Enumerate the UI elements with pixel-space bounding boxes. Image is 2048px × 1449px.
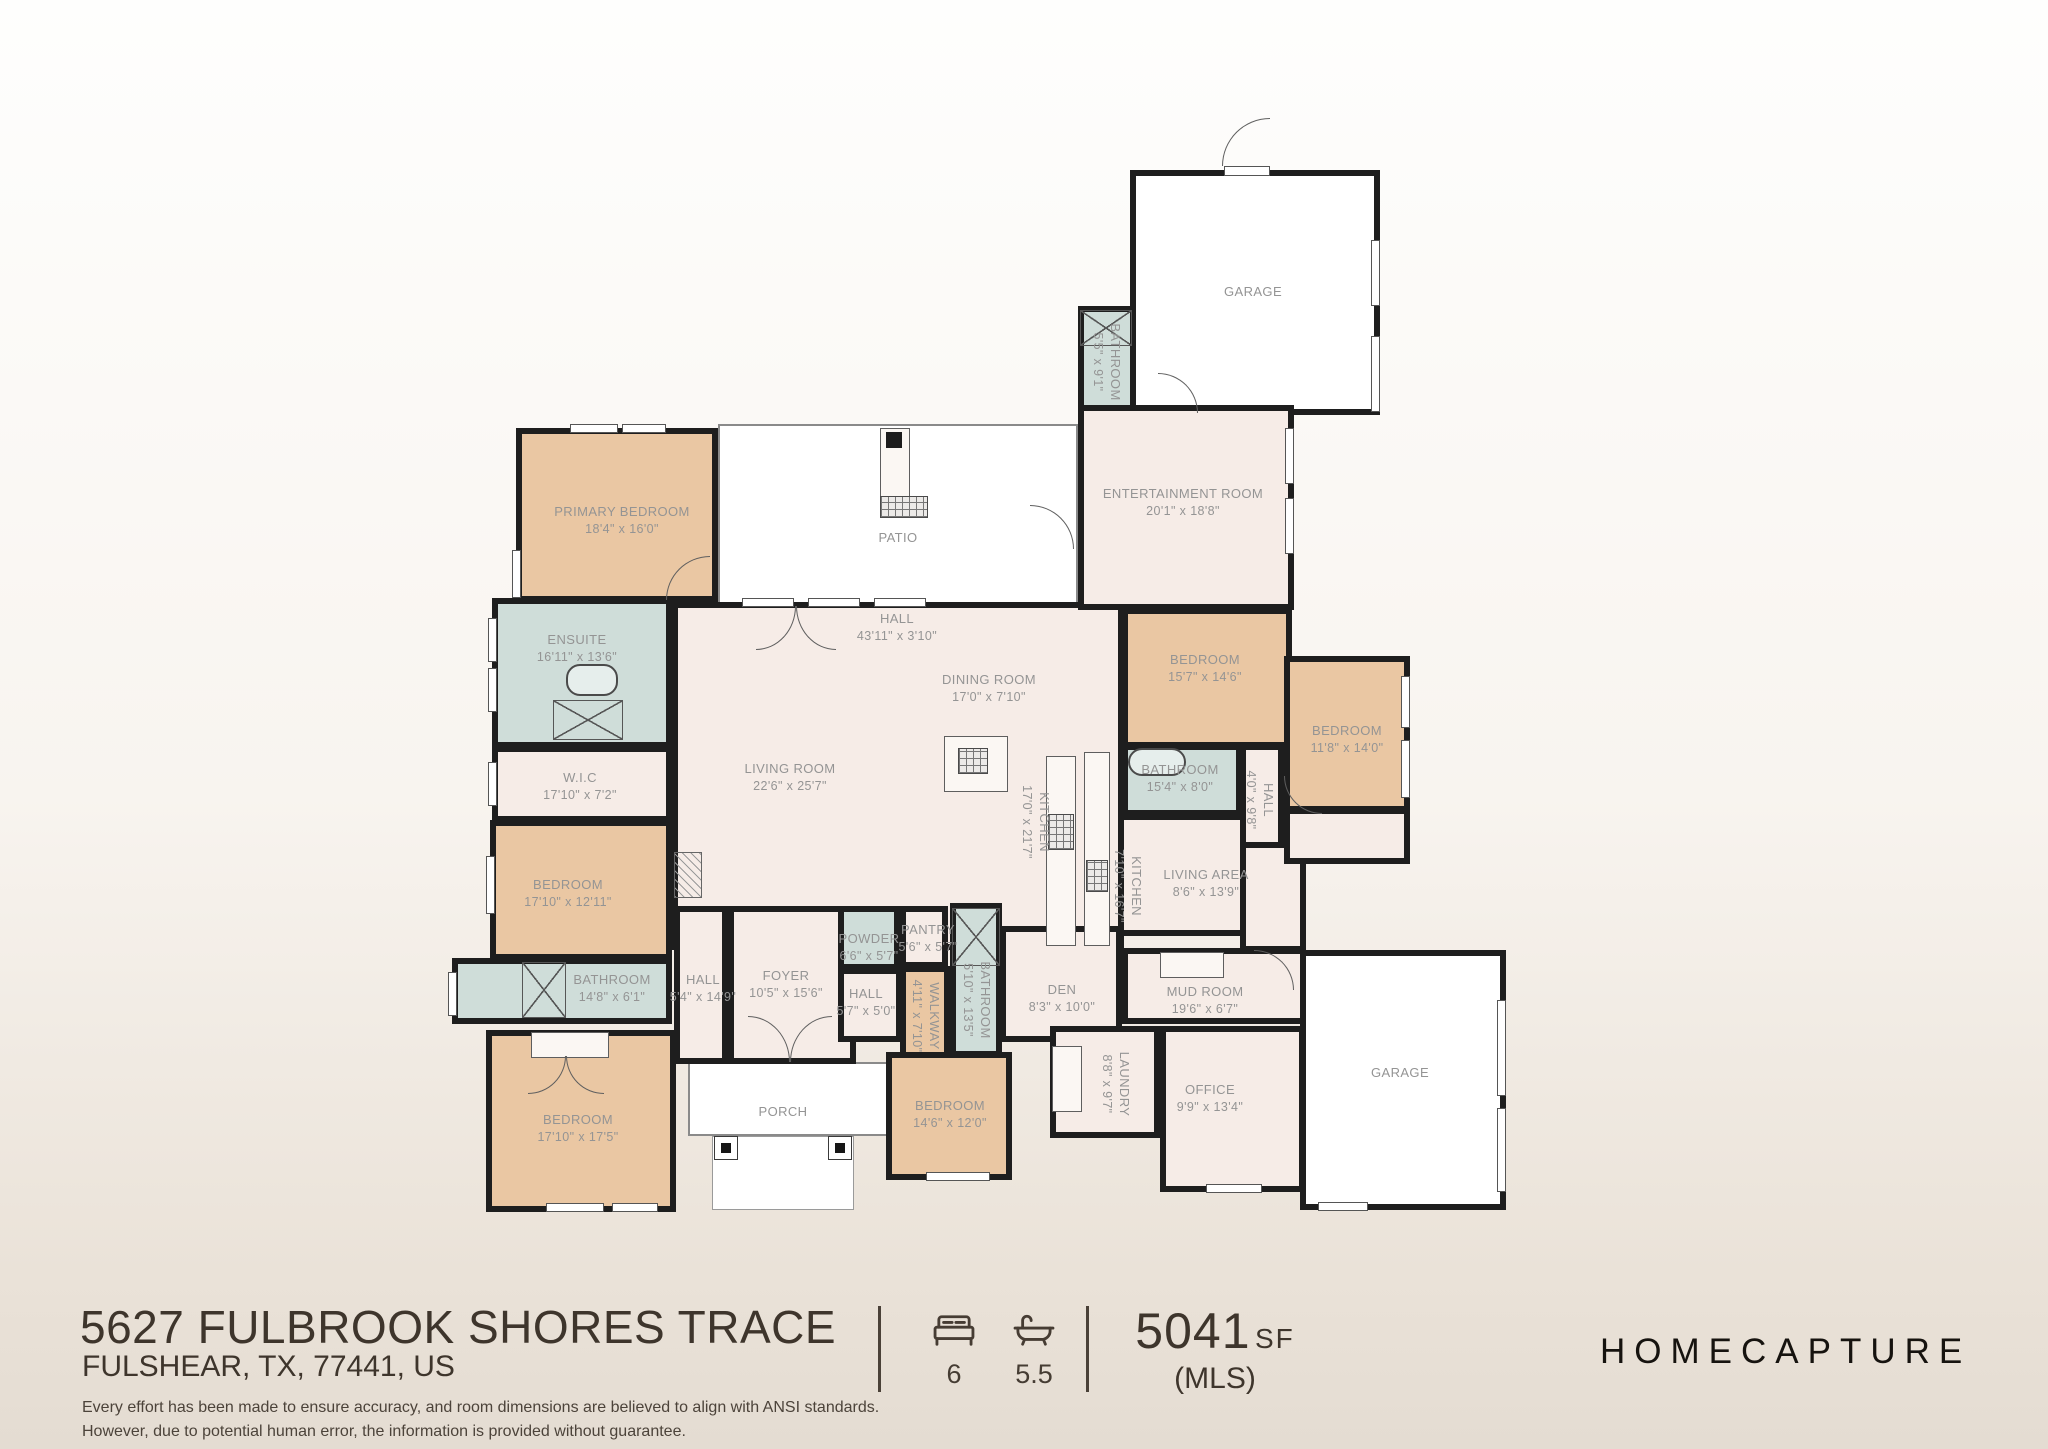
room-dimensions: 17'10" x 7'2" (543, 786, 617, 803)
counter-fixture (1084, 752, 1110, 946)
window (488, 762, 497, 806)
footer-divider-left (878, 1306, 881, 1392)
room-name: W.I.C (563, 770, 597, 785)
room-dimensions: 8'3" x 10'0" (1029, 998, 1095, 1015)
room-name: HALL (849, 986, 883, 1001)
room-filler-right2 (1284, 808, 1410, 864)
room-name: BEDROOM (1170, 652, 1240, 667)
brand-logo: HOMECAPTURE (1600, 1332, 2000, 1372)
room-dimensions: 17'0" x 21'7" (1019, 785, 1036, 859)
room-label-bedroom-right-2: BEDROOM11'8" x 14'0" (1311, 722, 1384, 756)
room-dimensions: 5'10" x 13'5" (960, 961, 977, 1038)
room-name: WALKWAY (927, 982, 942, 1049)
beds-count: 6 (912, 1359, 996, 1390)
area-value: 5041 (1135, 1303, 1250, 1359)
room-dimensions: 14'8" x 6'1" (573, 988, 650, 1005)
room-dimensions: 9'9" x 13'4" (1177, 1098, 1243, 1115)
room-dimensions: 17'10" x 12'11" (524, 893, 612, 910)
room-label-walkway: WALKWAY4'11" x 7'10" (909, 980, 943, 1053)
room-name: PANTRY (901, 922, 955, 937)
room-name: BATHROOM (1141, 762, 1218, 777)
window (1224, 166, 1270, 176)
room-label-kitchen-2: KITCHEN7'10" x 16'7" (1111, 849, 1145, 923)
room-name: LIVING AREA (1163, 867, 1248, 882)
room-dimensions: 17'0" x 7'10" (942, 688, 1036, 705)
room-label-porch: PORCH (759, 1103, 808, 1121)
room-name: HALL (880, 611, 914, 626)
address-line1: 5627 FULBROOK SHORES TRACE (80, 1300, 836, 1354)
baths-count: 5.5 (992, 1359, 1076, 1390)
room-label-hall-left: HALL5'4" x 14'9" (670, 971, 736, 1005)
room-dimensions: 43'11" x 3'10" (857, 627, 937, 644)
room-label-powder: POWDER6'6" x 5'7" (839, 930, 900, 964)
beds-stat: 6 (912, 1312, 996, 1390)
room-dimensions: 5'7" x 5'0" (836, 1002, 895, 1019)
room-label-bathroom-right: BATHROOM15'4" x 8'0" (1141, 761, 1218, 795)
room-name: PATIO (878, 530, 917, 545)
window (1371, 240, 1380, 306)
window (570, 424, 618, 433)
window (1401, 676, 1410, 728)
room-dimensions: 19'6" x 6'7" (1167, 1000, 1244, 1017)
room-dimensions: 11'8" x 14'0" (1311, 739, 1384, 756)
window (1285, 498, 1294, 554)
room-dimensions: 18'4" x 16'0" (554, 520, 690, 537)
room-label-wic: W.I.C17'10" x 7'2" (543, 769, 617, 803)
window (1285, 428, 1294, 484)
window (488, 668, 497, 712)
room-name: GARAGE (1224, 284, 1282, 299)
door-arc (1222, 118, 1270, 166)
room-name: OFFICE (1185, 1082, 1235, 1097)
room-name: PORCH (759, 1104, 808, 1119)
room-porch (688, 1062, 890, 1136)
footer-divider-right (1086, 1306, 1089, 1392)
room-name: BATHROOM (573, 972, 650, 987)
room-name: BATHROOM (978, 961, 993, 1038)
room-name: BEDROOM (1312, 723, 1382, 738)
room-name: BEDROOM (543, 1112, 613, 1127)
room-dimensions: 5'6" x 5'7" (898, 938, 957, 955)
room-label-living-area: LIVING AREA8'6" x 13'9" (1163, 866, 1248, 900)
room-name: LAUNDRY (1117, 1052, 1132, 1117)
room-dimensions: 6'6" x 5'7" (839, 947, 900, 964)
area-stat: 5041 SF (MLS) (1110, 1302, 1320, 1396)
room-label-living-room: LIVING ROOM22'6" x 25'7" (744, 760, 835, 794)
counter-fixture (1052, 1046, 1082, 1112)
window (1497, 1000, 1506, 1096)
window (874, 598, 926, 607)
post-fixture (828, 1136, 852, 1160)
room-dimensions: 15'4" x 8'0" (1141, 778, 1218, 795)
blacksq-fixture (886, 432, 902, 448)
post-fixture (714, 1136, 738, 1160)
room-name: KITCHEN (1037, 792, 1052, 852)
room-label-bedroom-left: BEDROOM17'10" x 12'11" (524, 876, 612, 910)
area-source: (MLS) (1110, 1362, 1320, 1396)
room-label-garage-top: GARAGE (1224, 283, 1282, 301)
grill-fixture (880, 496, 928, 518)
grill-fixture (958, 748, 988, 774)
room-label-kitchen-main: KITCHEN17'0" x 21'7" (1019, 785, 1053, 859)
room-label-den: DEN8'3" x 10'0" (1029, 981, 1095, 1015)
room-label-entertainment-room: ENTERTAINMENT ROOM20'1" x 18'8" (1103, 485, 1263, 519)
room-name: ENSUITE (547, 632, 606, 647)
window (926, 1172, 990, 1181)
room-label-pantry: PANTRY5'6" x 5'7" (898, 921, 957, 955)
room-dimensions: 16'11" x 13'6" (537, 648, 617, 665)
window (512, 550, 521, 598)
disclaimer: Every effort has been made to ensure acc… (82, 1396, 879, 1444)
room-label-primary-bedroom: PRIMARY BEDROOM18'4" x 16'0" (554, 503, 690, 537)
xbox-fixture (522, 962, 566, 1018)
window (546, 1203, 604, 1212)
room-label-laundry: LAUNDRY8'8" x 9'7" (1099, 1052, 1133, 1117)
window (1318, 1202, 1368, 1211)
room-label-bedroom-right-1: BEDROOM15'7" x 14'6" (1168, 651, 1242, 685)
baths-stat: 5.5 (992, 1312, 1076, 1390)
room-label-patio: PATIO (878, 529, 917, 547)
tub-fixture (566, 664, 618, 696)
room-dimensions: 4'0" x 9'8" (1243, 770, 1260, 829)
floor-plan-page: { "plan": { "rooms": [ {"id":"patio","fi… (0, 0, 2048, 1449)
window (486, 856, 495, 914)
window (1401, 740, 1410, 798)
bed-icon (932, 1312, 976, 1348)
window (612, 1203, 658, 1212)
room-name: BEDROOM (915, 1098, 985, 1113)
room-label-garage-bottom: GARAGE (1371, 1064, 1429, 1082)
room-name: POWDER (839, 931, 900, 946)
hatch-fixture (674, 852, 702, 898)
room-label-office: OFFICE9'9" x 13'4" (1177, 1081, 1243, 1115)
room-label-hall-right: HALL4'0" x 9'8" (1243, 770, 1277, 829)
room-name: DINING ROOM (942, 672, 1036, 687)
room-dimensions: 5'5" x 9'1" (1090, 323, 1107, 400)
room-dimensions: 7'10" x 16'7" (1111, 849, 1128, 923)
room-name: FOYER (763, 968, 810, 983)
room-label-hall-center: HALL5'7" x 5'0" (836, 985, 895, 1019)
window (1497, 1108, 1506, 1192)
window (1371, 336, 1380, 412)
counter-fixture (531, 1032, 609, 1058)
disclaimer-line2: However, due to potential human error, t… (82, 1420, 879, 1444)
window (488, 618, 497, 662)
room-name: MUD ROOM (1167, 984, 1244, 999)
room-name: PRIMARY BEDROOM (554, 504, 690, 519)
room-name: HALL (686, 972, 720, 987)
address-line2: FULSHEAR, TX, 77441, US (82, 1350, 455, 1384)
room-dimensions: 4'11" x 7'10" (909, 980, 926, 1053)
room-dimensions: 20'1" x 18'8" (1103, 502, 1263, 519)
disclaimer-line1: Every effort has been made to ensure acc… (82, 1396, 879, 1420)
area-unit: SF (1255, 1323, 1295, 1354)
room-label-bathroom-top: BATHROOM5'5" x 9'1" (1090, 323, 1124, 400)
room-name: HALL (1261, 783, 1276, 817)
floor-plan: GARAGEBATHROOM5'5" x 9'1"ENTERTAINMENT R… (0, 0, 2048, 1449)
room-dimensions: 8'6" x 13'9" (1163, 883, 1248, 900)
xbox-fixture (553, 700, 623, 740)
window (1206, 1184, 1262, 1193)
room-dimensions: 14'6" x 12'0" (913, 1114, 987, 1131)
room-label-mud-room: MUD ROOM19'6" x 6'7" (1167, 983, 1244, 1017)
grill-fixture (1086, 860, 1108, 892)
room-name: BEDROOM (533, 877, 603, 892)
room-label-bathroom-left: BATHROOM14'8" x 6'1" (573, 971, 650, 1005)
counter-fixture (1160, 952, 1224, 978)
room-name: LIVING ROOM (744, 761, 835, 776)
room-dimensions: 8'8" x 9'7" (1099, 1052, 1116, 1117)
room-label-bedroom-bottom-left: BEDROOM17'10" x 17'5" (537, 1111, 618, 1145)
room-dimensions: 5'4" x 14'9" (670, 988, 736, 1005)
room-label-hall-top: HALL43'11" x 3'10" (857, 610, 937, 644)
room-dimensions: 15'7" x 14'6" (1168, 668, 1242, 685)
window (448, 972, 457, 1016)
room-label-dining-room: DINING ROOM17'0" x 7'10" (942, 671, 1036, 705)
bath-icon (1012, 1312, 1056, 1348)
room-label-ensuite: ENSUITE16'11" x 13'6" (537, 631, 617, 665)
window (622, 424, 666, 433)
room-label-bathroom-center: BATHROOM5'10" x 13'5" (960, 961, 994, 1038)
room-name: DEN (1048, 982, 1077, 997)
room-label-bedroom-bottom-center: BEDROOM14'6" x 12'0" (913, 1097, 987, 1131)
xbox-fixture (952, 908, 1000, 966)
room-name: KITCHEN (1129, 856, 1144, 916)
room-label-foyer: FOYER10'5" x 15'6" (749, 967, 823, 1001)
room-name: GARAGE (1371, 1065, 1429, 1080)
room-name: BATHROOM (1108, 323, 1123, 400)
room-dimensions: 17'10" x 17'5" (537, 1128, 618, 1145)
room-dimensions: 10'5" x 15'6" (749, 984, 823, 1001)
room-name: ENTERTAINMENT ROOM (1103, 486, 1263, 501)
room-dimensions: 22'6" x 25'7" (744, 777, 835, 794)
